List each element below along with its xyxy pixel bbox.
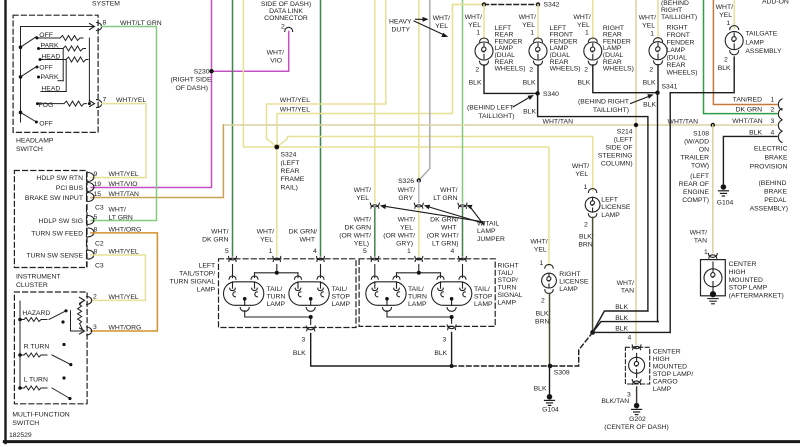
svg-text:SYSTEM: SYSTEM [92, 1, 120, 8]
svg-text:1: 1 [269, 248, 273, 255]
svg-text:YEL): YEL) [354, 240, 369, 247]
svg-text:BLK: BLK [523, 80, 536, 87]
svg-text:SIDE OF: SIDE OF [605, 145, 632, 152]
svg-text:1: 1 [585, 30, 589, 37]
svg-text:HDLP SW SIG: HDLP SW SIG [39, 218, 83, 225]
svg-text:S324: S324 [281, 152, 297, 159]
svg-text:LAMP: LAMP [653, 386, 672, 393]
svg-text:TAIL/: TAIL/ [408, 286, 424, 293]
svg-text:TAN: TAN [694, 237, 707, 244]
svg-text:YEL: YEL [575, 171, 588, 178]
svg-text:REAR OF: REAR OF [679, 181, 709, 188]
svg-text:WHEELS): WHEELS) [550, 66, 581, 73]
svg-text:BLK: BLK [434, 350, 447, 357]
svg-text:HEADLAMP: HEADLAMP [16, 138, 54, 145]
svg-text:HEAD: HEAD [41, 53, 60, 60]
svg-text:ENGINE: ENGINE [683, 189, 710, 196]
svg-text:HIGH: HIGH [653, 356, 670, 363]
svg-text:RAIL): RAIL) [281, 184, 298, 191]
svg-text:REAR: REAR [667, 62, 686, 69]
svg-text:LICENSE: LICENSE [601, 204, 631, 211]
svg-text:2: 2 [771, 107, 775, 114]
svg-text:LEFT: LEFT [199, 262, 216, 269]
svg-text:WHT/: WHT/ [519, 14, 536, 21]
svg-text:WHT/: WHT/ [573, 14, 590, 21]
svg-text:WHT: WHT [441, 224, 456, 231]
svg-text:YEL: YEL [356, 195, 369, 202]
svg-text:(OR WHT/: (OR WHT/ [383, 232, 415, 239]
svg-text:15: 15 [94, 191, 102, 198]
svg-text:S341: S341 [662, 84, 678, 91]
svg-text:MOUNTED: MOUNTED [729, 277, 763, 284]
svg-text:(RIGHT SIDE: (RIGHT SIDE [170, 77, 212, 84]
svg-text:HEAD: HEAD [41, 86, 60, 93]
svg-text:STOP: STOP [332, 294, 351, 301]
svg-text:WHEELS): WHEELS) [495, 66, 526, 73]
svg-text:S214: S214 [617, 129, 633, 136]
svg-text:182529: 182529 [9, 432, 32, 439]
svg-text:DATA LINK: DATA LINK [269, 8, 303, 15]
svg-text:INSTRUMENT: INSTRUMENT [16, 273, 61, 280]
svg-text:WHT/: WHT/ [109, 206, 126, 213]
svg-text:TURN SW FEED: TURN SW FEED [31, 230, 83, 237]
svg-text:WHT/: WHT/ [398, 216, 415, 223]
svg-text:LAMP: LAMP [601, 212, 620, 219]
svg-text:WHT/: WHT/ [440, 187, 457, 194]
svg-text:3: 3 [302, 336, 306, 343]
svg-text:WHT/: WHT/ [354, 187, 371, 194]
svg-text:(BEHIND RIGHT: (BEHIND RIGHT [578, 99, 629, 106]
svg-text:DUTY: DUTY [392, 27, 411, 34]
svg-text:C3: C3 [95, 205, 104, 212]
svg-text:WHT/VIO: WHT/VIO [109, 181, 138, 188]
svg-text:(BEHIND LEFT: (BEHIND LEFT [467, 105, 513, 112]
svg-text:HDLP SW RTN: HDLP SW RTN [36, 175, 83, 182]
svg-text:WHT/YEL: WHT/YEL [109, 294, 139, 301]
svg-text:TRAILER: TRAILER [680, 154, 709, 161]
svg-text:LAMP: LAMP [477, 228, 496, 235]
svg-text:2: 2 [724, 56, 728, 63]
svg-text:ASSEMBLY: ASSEMBLY [745, 48, 782, 55]
svg-text:(BEHIND: (BEHIND [759, 180, 787, 187]
svg-text:BLK: BLK [718, 65, 731, 72]
svg-text:DK GRN: DK GRN [736, 107, 763, 114]
svg-text:SIGNAL: SIGNAL [498, 292, 523, 299]
svg-text:ON: ON [699, 146, 709, 153]
svg-text:GRY): GRY) [396, 240, 413, 247]
svg-text:STOP/: STOP/ [498, 277, 518, 284]
svg-text:3: 3 [443, 336, 447, 343]
svg-text:TAIL/: TAIL/ [498, 270, 514, 277]
svg-text:L TURN: L TURN [24, 376, 48, 383]
svg-text:BLK: BLK [643, 102, 656, 109]
svg-text:HIGH: HIGH [729, 269, 746, 276]
svg-text:S230: S230 [194, 68, 210, 75]
svg-text:BRAKE SW INPUT: BRAKE SW INPUT [25, 195, 83, 202]
svg-text:TAN: TAN [621, 288, 634, 295]
svg-text:2: 2 [281, 23, 285, 30]
svg-text:TURN SIGNAL: TURN SIGNAL [169, 278, 215, 285]
svg-text:ASSEMBLY): ASSEMBLY) [750, 205, 788, 212]
svg-text:(LEFT: (LEFT [614, 137, 633, 144]
svg-text:LT GRN: LT GRN [433, 195, 457, 202]
svg-text:GRY: GRY [398, 195, 413, 202]
svg-text:FOG: FOG [39, 102, 54, 109]
svg-text:(OR WHT/: (OR WHT/ [427, 232, 459, 239]
svg-text:TURN SW SENSE: TURN SW SENSE [26, 253, 83, 260]
svg-text:2: 2 [584, 66, 588, 73]
svg-text:2: 2 [584, 222, 588, 229]
svg-text:1: 1 [726, 20, 730, 27]
svg-text:(LEFT: (LEFT [281, 160, 300, 167]
svg-text:19: 19 [94, 181, 102, 188]
svg-text:COLUMN): COLUMN) [601, 161, 633, 168]
svg-text:TAILLIGHT): TAILLIGHT) [478, 113, 514, 120]
svg-text:2: 2 [93, 293, 97, 300]
svg-text:2: 2 [529, 66, 533, 73]
svg-text:WHT/: WHT/ [257, 229, 274, 236]
svg-text:STOP LAMP/: STOP LAMP/ [653, 371, 694, 378]
svg-text:WHT/TAN: WHT/TAN [732, 118, 763, 125]
svg-text:YEL: YEL [400, 224, 413, 231]
svg-text:ADD-ON: ADD-ON [762, 0, 789, 5]
svg-text:TAILLIGHT): TAILLIGHT) [593, 107, 629, 114]
svg-text:TURN: TURN [267, 294, 286, 301]
svg-text:WHT/: WHT/ [267, 50, 284, 57]
svg-text:LICENSE: LICENSE [559, 278, 589, 285]
svg-text:(W/ADD: (W/ADD [684, 138, 709, 145]
svg-text:S340: S340 [543, 91, 559, 98]
svg-text:TURN: TURN [408, 294, 427, 301]
svg-text:BLK/: BLK/ [536, 311, 551, 318]
svg-text:WHT/: WHT/ [716, 4, 733, 11]
svg-text:WHT/: WHT/ [354, 216, 371, 223]
svg-text:5: 5 [225, 248, 229, 255]
svg-text:S342: S342 [544, 1, 560, 8]
svg-text:STOP LAMP: STOP LAMP [729, 285, 768, 292]
svg-text:RIGHT: RIGHT [498, 262, 519, 269]
svg-text:TOW): TOW) [691, 162, 709, 169]
svg-text:4: 4 [771, 130, 775, 137]
svg-text:3: 3 [93, 324, 97, 331]
svg-text:SWITCH: SWITCH [12, 420, 39, 427]
svg-text:MULTI-FUNCTION: MULTI-FUNCTION [12, 412, 69, 419]
svg-text:TAIL/STOP/: TAIL/STOP/ [179, 270, 215, 277]
svg-text:BLK: BLK [615, 326, 628, 333]
svg-text:R TURN: R TURN [24, 343, 50, 350]
svg-text:PCI BUS: PCI BUS [56, 185, 84, 192]
svg-text:CENTER: CENTER [729, 261, 757, 268]
svg-text:WHT/: WHT/ [690, 229, 707, 236]
svg-text:BLK: BLK [523, 108, 536, 115]
svg-text:1: 1 [704, 249, 708, 256]
svg-text:WHT/YEL: WHT/YEL [280, 106, 310, 113]
svg-text:WHT/: WHT/ [572, 163, 589, 170]
svg-text:TAILGATE: TAILGATE [745, 31, 777, 38]
svg-text:WHEELS): WHEELS) [603, 66, 634, 73]
svg-text:TAN/RED: TAN/RED [733, 97, 762, 104]
svg-text:PROVISION: PROVISION [750, 164, 788, 171]
svg-text:C2: C2 [95, 241, 104, 248]
svg-text:REAR: REAR [281, 168, 300, 175]
svg-text:4: 4 [451, 248, 455, 255]
svg-text:2: 2 [541, 298, 545, 305]
svg-text:TAIL/: TAIL/ [474, 286, 490, 293]
svg-text:LAMP: LAMP [745, 39, 764, 46]
svg-text:5: 5 [94, 214, 98, 221]
svg-text:TURN: TURN [498, 285, 517, 292]
svg-text:OFF: OFF [39, 32, 53, 39]
svg-text:LEFT: LEFT [601, 197, 618, 204]
svg-text:BRAKE: BRAKE [764, 155, 788, 162]
svg-text:WHT/ORG: WHT/ORG [109, 325, 142, 332]
svg-text:1: 1 [530, 30, 534, 37]
svg-text:ELECTRIC: ELECTRIC [754, 146, 788, 153]
svg-text:PARK: PARK [41, 42, 59, 49]
svg-text:2: 2 [649, 66, 653, 73]
svg-text:VIO: VIO [270, 58, 282, 65]
svg-text:BLK: BLK [615, 315, 628, 322]
svg-text:OF DASH): OF DASH) [176, 85, 208, 92]
svg-text:YEL: YEL [522, 22, 535, 29]
svg-text:YEL: YEL [642, 22, 655, 29]
svg-text:WHT/TAN: WHT/TAN [543, 118, 574, 125]
svg-text:8: 8 [103, 19, 107, 26]
svg-text:1: 1 [407, 248, 411, 255]
svg-text:LAMP: LAMP [408, 301, 427, 308]
svg-text:BLK/TAN: BLK/TAN [601, 398, 629, 405]
svg-text:2: 2 [475, 66, 479, 73]
svg-text:LAMP: LAMP [559, 286, 578, 293]
svg-text:RIGHT: RIGHT [667, 25, 688, 32]
svg-text:STEERING: STEERING [598, 153, 633, 160]
svg-text:YEL: YEL [719, 12, 732, 19]
svg-text:G202: G202 [629, 416, 646, 423]
svg-text:S326: S326 [398, 178, 414, 185]
svg-text:TAIL/: TAIL/ [332, 286, 348, 293]
svg-text:WHT/: WHT/ [617, 280, 634, 287]
svg-text:7: 7 [103, 97, 107, 104]
svg-text:CENTER: CENTER [653, 349, 681, 356]
svg-text:LT GRN: LT GRN [109, 214, 133, 221]
svg-text:(BEHIND: (BEHIND [661, 0, 689, 7]
svg-text:(LEFT: (LEFT [690, 173, 709, 180]
svg-text:DK GRN/: DK GRN/ [289, 229, 317, 236]
svg-text:BLK: BLK [643, 80, 656, 87]
svg-text:BLK: BLK [293, 350, 306, 357]
svg-text:TAIL/: TAIL/ [267, 286, 283, 293]
svg-text:BRN: BRN [535, 319, 549, 326]
svg-text:DK GRN/: DK GRN/ [430, 216, 458, 223]
svg-text:WHT/TAN: WHT/TAN [668, 119, 699, 126]
svg-text:3: 3 [771, 118, 775, 125]
svg-text:1: 1 [650, 30, 654, 37]
svg-text:FRAME: FRAME [281, 176, 305, 183]
svg-text:YEL: YEL [468, 22, 481, 29]
svg-text:FENDER: FENDER [667, 40, 695, 47]
svg-text:WHT/: WHT/ [530, 239, 547, 246]
svg-text:G104: G104 [717, 199, 734, 206]
svg-text:OFF: OFF [39, 120, 53, 127]
svg-text:9: 9 [94, 171, 98, 178]
svg-text:WHT/: WHT/ [465, 14, 482, 21]
svg-text:WHT/YEL: WHT/YEL [280, 97, 310, 104]
svg-text:FRONT: FRONT [667, 32, 690, 39]
svg-text:LAMP: LAMP [474, 301, 493, 308]
svg-text:DK GRN: DK GRN [202, 237, 229, 244]
svg-text:BRAKE: BRAKE [764, 189, 788, 196]
svg-text:(DUAL: (DUAL [667, 55, 688, 62]
svg-text:1: 1 [771, 97, 775, 104]
svg-text:4: 4 [313, 248, 317, 255]
svg-text:S108: S108 [693, 130, 709, 137]
svg-text:(CENTER OF DASH): (CENTER OF DASH) [604, 424, 669, 431]
svg-text:TAILLIGHT): TAILLIGHT) [661, 14, 697, 21]
svg-text:HAZARD: HAZARD [22, 310, 50, 317]
svg-text:YEL: YEL [534, 247, 547, 254]
svg-text:WHT/: WHT/ [639, 15, 656, 22]
svg-text:YEL: YEL [260, 237, 273, 244]
svg-text:RIGHT: RIGHT [661, 7, 682, 14]
svg-text:YEL: YEL [577, 22, 590, 29]
svg-text:LAMP: LAMP [267, 301, 286, 308]
svg-text:G104: G104 [542, 407, 559, 414]
svg-text:LAMP: LAMP [197, 286, 216, 293]
svg-text:WHEELS): WHEELS) [667, 70, 698, 77]
svg-text:S309: S309 [554, 370, 570, 377]
svg-text:PEDAL: PEDAL [764, 197, 787, 204]
svg-text:LT GRN): LT GRN) [432, 240, 459, 247]
svg-text:1: 1 [540, 260, 544, 267]
svg-text:BLK: BLK [615, 304, 628, 311]
svg-text:1: 1 [584, 184, 588, 191]
svg-text:SWITCH: SWITCH [16, 146, 43, 153]
svg-text:WHT/: WHT/ [433, 15, 450, 22]
svg-text:5: 5 [363, 248, 367, 255]
svg-text:HEAVY: HEAVY [389, 18, 412, 25]
svg-text:(AFTERMARKET): (AFTERMARKET) [729, 293, 784, 300]
svg-text:LAMP: LAMP [332, 301, 351, 308]
svg-text:SIDE OF DASH): SIDE OF DASH) [261, 1, 311, 8]
svg-text:YEL: YEL [435, 23, 448, 30]
svg-text:RIGHT: RIGHT [559, 271, 580, 278]
svg-text:BLK/: BLK/ [579, 233, 594, 240]
svg-text:BLK: BLK [577, 80, 590, 87]
svg-text:(OR WHT/: (OR WHT/ [339, 232, 371, 239]
svg-text:BRN: BRN [578, 241, 592, 248]
svg-text:LAMP: LAMP [498, 299, 517, 306]
svg-text:CARGO: CARGO [653, 379, 678, 386]
svg-text:4: 4 [628, 335, 632, 342]
svg-text:DK GRN: DK GRN [345, 224, 372, 231]
svg-text:PARK: PARK [41, 74, 59, 81]
svg-text:CONNECTOR: CONNECTOR [264, 15, 308, 22]
svg-text:WHT/: WHT/ [398, 187, 415, 194]
svg-text:MOUNTED: MOUNTED [653, 364, 687, 371]
svg-text:BLK: BLK [749, 130, 762, 137]
svg-text:CLUSTER: CLUSTER [16, 282, 48, 289]
svg-text:WHT/: WHT/ [211, 229, 228, 236]
svg-text:WHT/TAN: WHT/TAN [109, 191, 140, 198]
svg-text:WHT/YEL: WHT/YEL [109, 171, 139, 178]
svg-text:WHT: WHT [300, 237, 315, 244]
svg-text:1: 1 [476, 30, 480, 37]
svg-text:LAMP: LAMP [667, 47, 686, 54]
svg-text:BLK: BLK [534, 385, 547, 392]
svg-text:STOP: STOP [474, 294, 493, 301]
svg-text:COMPT): COMPT) [682, 197, 709, 204]
svg-text:C3: C3 [95, 262, 104, 269]
svg-text:BLK: BLK [469, 80, 482, 87]
svg-text:JUMPER: JUMPER [477, 236, 505, 243]
svg-text:OFF: OFF [39, 64, 53, 71]
